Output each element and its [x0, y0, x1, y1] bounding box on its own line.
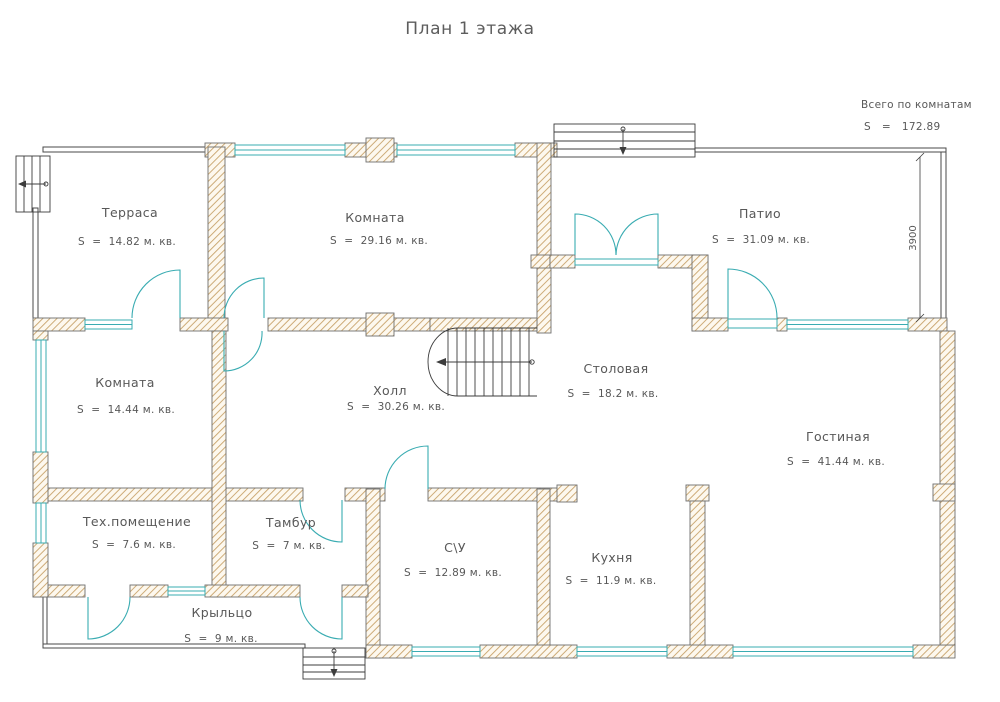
- room-name-patio: Патио: [739, 206, 781, 221]
- room-area-tambour: S = 7 м. кв.: [252, 540, 326, 552]
- wc-door-arc: [385, 446, 428, 489]
- hatched-walls: [33, 138, 955, 658]
- french-door-left-arc: [575, 214, 616, 255]
- room-area-tech: S = 7.6 м. кв.: [92, 539, 176, 551]
- room-area-room-left: S = 14.44 м. кв.: [77, 404, 175, 416]
- windows: [36, 145, 913, 656]
- room-area-dining: S = 18.2 м. кв.: [567, 388, 658, 400]
- stairs-hall: [428, 328, 537, 396]
- patio-door-arc: [728, 269, 777, 318]
- room-name-kitchen: Кухня: [591, 550, 632, 565]
- room-top-door-arc: [224, 278, 264, 318]
- room-name-porch: Крыльцо: [192, 605, 253, 620]
- total-summary: Всего по комнатам S = 172.89: [861, 99, 972, 133]
- page-title: План 1 этажа: [405, 19, 534, 39]
- room-area-kitchen: S = 11.9 м. кв.: [565, 575, 656, 587]
- room-name-tech: Тех.помещение: [82, 514, 191, 529]
- summary-value: S = 172.89: [864, 121, 940, 133]
- room-area-hall: S = 30.26 м. кв.: [347, 401, 445, 413]
- room-name-hall: Холл: [373, 383, 407, 398]
- room-name-wc: С\У: [444, 540, 466, 555]
- summary-label: Всего по комнатам: [861, 99, 972, 111]
- room-name-terrace: Терраса: [101, 205, 158, 220]
- room-area-room-top: S = 29.16 м. кв.: [330, 235, 428, 247]
- room-left-door-arc: [224, 331, 262, 371]
- tambour-bottom-door-arc: [300, 597, 342, 639]
- steps-patio: [554, 124, 695, 157]
- room-name-room-top: Комната: [345, 210, 405, 225]
- room-area-porch: S = 9 м. кв.: [184, 633, 258, 645]
- patio-door-threshold: [728, 319, 777, 328]
- steps-porch: [303, 648, 365, 679]
- room-area-terrace: S = 14.82 м. кв.: [78, 236, 176, 248]
- room-name-living: Гостиная: [806, 429, 870, 444]
- room-labels: Терраса S = 14.82 м. кв. Комната S = 29.…: [77, 205, 885, 645]
- room-area-patio: S = 31.09 м. кв.: [712, 234, 810, 246]
- steps-terrace: [16, 156, 50, 212]
- french-door-threshold: [575, 259, 658, 265]
- room-area-living: S = 41.44 м. кв.: [787, 456, 885, 468]
- tech-porch-door-arc: [88, 597, 130, 639]
- french-door-right-arc: [616, 214, 658, 255]
- terrace-door-arc: [132, 270, 180, 318]
- dimension-value: 3900: [908, 225, 919, 250]
- dimension-3900: 3900: [908, 153, 924, 322]
- room-area-wc: S = 12.89 м. кв.: [404, 567, 502, 579]
- room-name-dining: Столовая: [583, 361, 648, 376]
- room-name-tambour: Тамбур: [265, 515, 316, 530]
- floor-plan-canvas: 3900 План 1 этажа Всего по комнатам S = …: [0, 0, 1000, 702]
- room-name-room-left: Комната: [95, 375, 155, 390]
- floor-plan-drawing: 3900 План 1 этажа Всего по комнатам S = …: [0, 0, 1000, 702]
